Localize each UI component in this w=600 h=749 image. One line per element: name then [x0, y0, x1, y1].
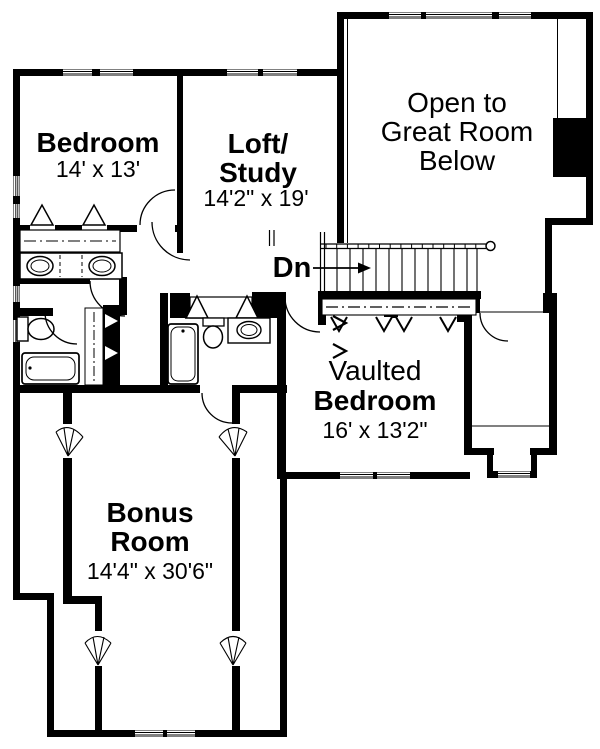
chimney-chase	[553, 118, 593, 177]
wall-nook-right-post	[543, 293, 557, 313]
loft-label-line2: Study	[219, 157, 297, 188]
greatroom-note-line2: Great Room	[381, 116, 534, 147]
window	[389, 13, 421, 19]
window	[227, 70, 258, 76]
attic-vent	[83, 631, 113, 666]
toilet-tank	[203, 318, 224, 326]
window	[167, 731, 195, 737]
wall-left-lower	[47, 596, 54, 737]
loft-label-line1: Loft/	[228, 128, 289, 159]
greatroom-note-line1: Open to	[407, 87, 507, 118]
window	[135, 731, 163, 737]
wall-midbath-left	[160, 293, 168, 393]
sink-basin	[241, 325, 257, 336]
window	[426, 13, 492, 19]
wall-nook-right	[549, 293, 557, 455]
bonus-room-label-line2: Room	[110, 526, 189, 557]
wall-right-jog	[545, 218, 593, 225]
wall-loft-right	[337, 12, 344, 243]
wall-bonus-right-outer	[280, 473, 287, 737]
floor-plan-drawing: Dn	[0, 0, 600, 749]
stairs-down-label: Dn	[273, 252, 312, 284]
bedroom-dims: 14' x 13'	[56, 156, 140, 182]
window	[340, 473, 373, 479]
toilet-tank	[17, 317, 28, 341]
window	[14, 286, 20, 302]
window	[63, 70, 92, 76]
tub-faucet	[181, 329, 184, 332]
attic-vent	[56, 424, 86, 458]
wall-closet-post-left	[170, 293, 190, 318]
window	[14, 204, 20, 218]
vaulted-bedroom-dims: 16' x 13'2"	[322, 417, 427, 443]
bonus-room-label-line1: Bonus	[106, 497, 193, 528]
window	[499, 13, 531, 19]
window	[14, 176, 20, 196]
sink-left-basin	[31, 260, 49, 272]
bathtub-basin	[171, 327, 195, 381]
wall-under-stairs	[318, 291, 481, 299]
window	[100, 70, 133, 76]
wall-bath-top	[13, 308, 53, 316]
window	[263, 70, 297, 76]
wall-right-mid	[545, 218, 552, 300]
sink-right-basin	[93, 260, 111, 272]
window	[498, 472, 530, 478]
bonus-room-dims: 14'4" x 30'6"	[87, 558, 213, 584]
wall-hall-post	[119, 277, 127, 315]
greatroom-note-line3: Below	[419, 145, 496, 176]
bedroom-label: Bedroom	[37, 127, 160, 158]
vaulted-bedroom-qualifier: Vaulted	[329, 355, 422, 386]
floor-plan-page: Dn	[0, 0, 600, 749]
vaulted-bedroom-label: Bedroom	[314, 385, 437, 416]
loft-dims: 14'2" x 19'	[203, 185, 308, 211]
door-opening-bedroom	[137, 225, 175, 232]
bathtub-basin	[26, 357, 75, 380]
attic-vent	[218, 631, 248, 666]
wall-mid-bottom-right	[232, 385, 287, 393]
toilet-bowl	[204, 326, 223, 348]
newel-post	[486, 242, 495, 251]
tub-faucet	[28, 366, 31, 369]
wall-bonus-left-lower	[95, 604, 102, 732]
window	[377, 473, 410, 479]
wall-mid-bottom-left	[13, 385, 200, 393]
wall-bonus-left-jog	[63, 596, 102, 604]
wall-vaulted-bottom	[277, 472, 470, 479]
